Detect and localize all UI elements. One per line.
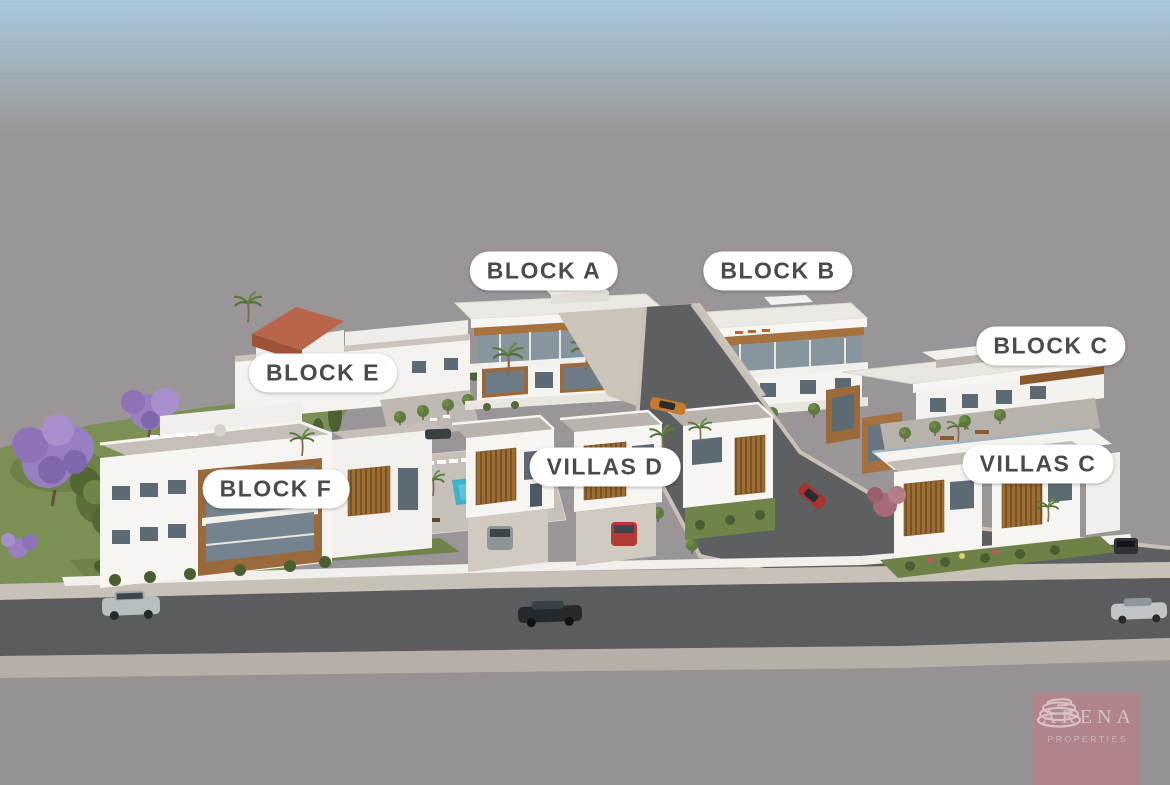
label-block-c: BLOCK C bbox=[976, 327, 1125, 366]
gray-parked-car bbox=[487, 526, 513, 550]
black-suv bbox=[1114, 538, 1138, 554]
wood-louver bbox=[476, 448, 516, 505]
site-render: BLOCK A BLOCK B BLOCK C BLOCK E BLOCK F … bbox=[0, 0, 1170, 785]
label-block-f: BLOCK F bbox=[203, 470, 350, 509]
sky-gradient bbox=[0, 0, 1170, 135]
arena-swirl-icon bbox=[1033, 693, 1085, 729]
wood-louver bbox=[904, 480, 944, 536]
wood-louver bbox=[735, 435, 765, 495]
label-block-b: BLOCK B bbox=[703, 252, 852, 291]
label-block-e: BLOCK E bbox=[249, 354, 397, 393]
label-villas-c: VILLAS C bbox=[963, 445, 1114, 484]
dark-carport-car bbox=[425, 429, 451, 440]
red-parked-car bbox=[611, 522, 637, 546]
label-block-a: BLOCK A bbox=[470, 252, 618, 291]
arena-properties-logo: ARENA PROPERTIES bbox=[1033, 693, 1140, 785]
render-scene bbox=[0, 0, 1170, 785]
logo-subtitle: PROPERTIES bbox=[1045, 734, 1128, 744]
label-villas-d: VILLAS D bbox=[530, 448, 681, 487]
